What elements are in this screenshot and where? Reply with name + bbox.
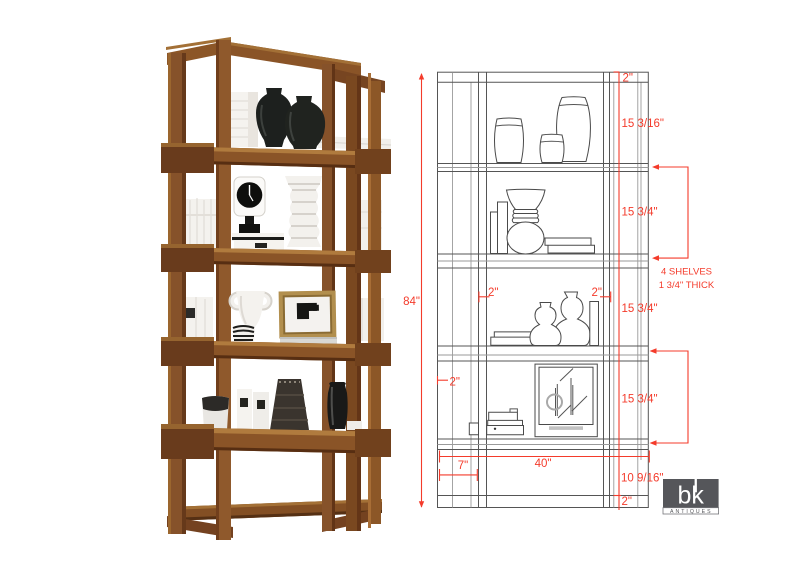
svg-text:1 3/4" THICK: 1 3/4" THICK <box>659 280 715 291</box>
svg-text:15 3/4": 15 3/4" <box>622 303 658 315</box>
svg-text:40": 40" <box>535 458 552 470</box>
svg-text:15 3/4": 15 3/4" <box>622 207 658 219</box>
svg-text:15 3/4": 15 3/4" <box>622 394 658 406</box>
svg-text:7": 7" <box>458 460 468 472</box>
svg-text:84": 84" <box>403 296 420 308</box>
svg-text:2": 2" <box>622 496 632 508</box>
svg-text:2": 2" <box>623 72 633 84</box>
svg-text:15 3/16": 15 3/16" <box>622 118 664 130</box>
svg-text:10 9/16": 10 9/16" <box>621 473 663 485</box>
svg-text:ANTIQUES: ANTIQUES <box>670 509 713 515</box>
svg-text:2": 2" <box>450 377 460 389</box>
svg-text:4 SHELVES: 4 SHELVES <box>661 267 712 278</box>
svg-text:bk: bk <box>678 482 705 510</box>
svg-text:2": 2" <box>488 287 498 299</box>
svg-text:2": 2" <box>592 287 602 299</box>
